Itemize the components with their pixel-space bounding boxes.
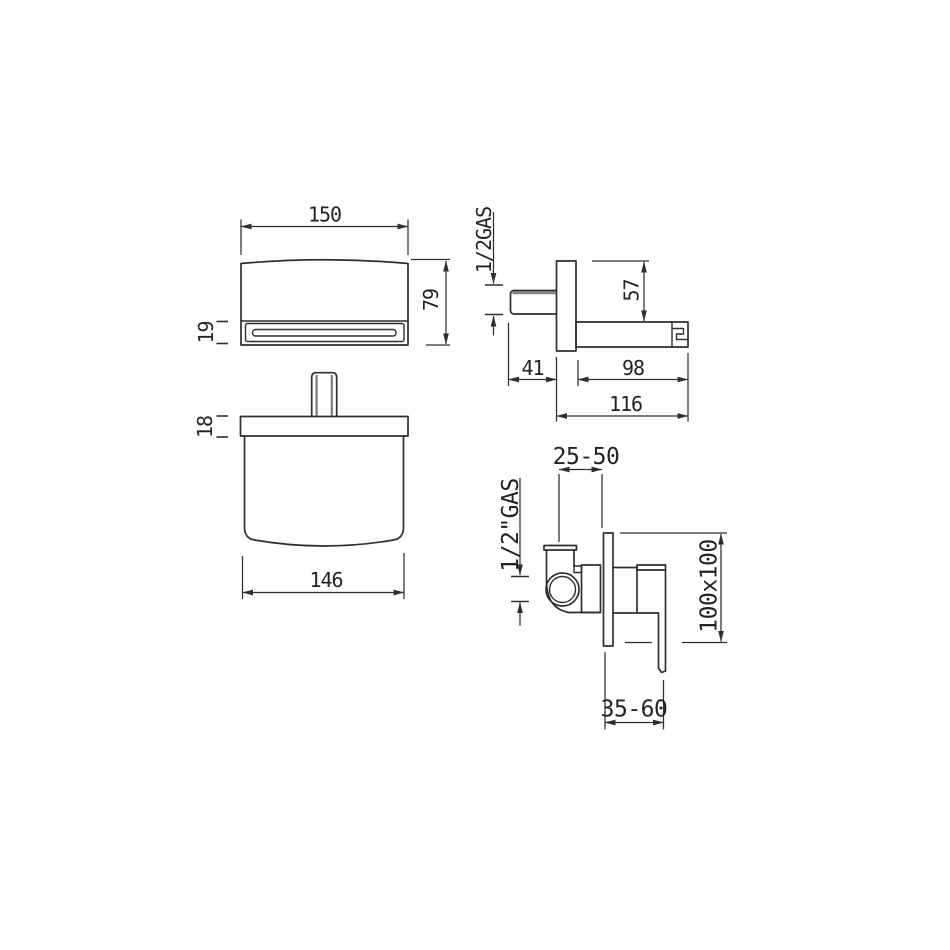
dim-label-25-50: 25-50 [553, 444, 620, 470]
dimension-thread-half-gas: 1/2GAS [472, 207, 503, 336]
dim-label-half-inch-gas: 1/2"GAS [498, 478, 524, 571]
dim-label-146: 146 [309, 568, 342, 592]
spout-side-arm-notch [672, 329, 688, 340]
dimension-handle-35-60: 35-60 [601, 652, 668, 730]
dimension-thread-half-inch-gas: 1/2"GAS [498, 478, 529, 626]
mixer-inlet-boss-circle [546, 573, 579, 606]
mixer-elbow-flange [544, 546, 577, 551]
spout-top-mounting-plate [241, 417, 409, 437]
spout-front-slot-face [246, 324, 405, 342]
dim-label-116: 116 [609, 392, 642, 416]
mixer-wall-plate [604, 533, 614, 646]
dimension-height-79: 79 [411, 260, 450, 346]
mixer-side-view: 25-50 1/2"GAS 100x100 35-60 [498, 444, 727, 730]
dimension-thickness-18: 18 [193, 416, 228, 438]
mixer-cartridge-housing [582, 565, 601, 613]
mixer-inlet-thread-circle [550, 577, 576, 603]
dim-label-35-60: 35-60 [601, 697, 668, 723]
dim-label-18: 18 [193, 416, 217, 438]
mixer-connector-step [574, 566, 582, 573]
mixer-handle-top [637, 565, 666, 570]
dim-label-150: 150 [308, 203, 341, 227]
drawing-page: 150 79 19 18 146 [0, 0, 950, 950]
dimension-total-116: 116 [557, 392, 689, 416]
dim-label-79: 79 [419, 289, 443, 311]
mixer-handle-tip [659, 668, 666, 673]
spout-side-arm [576, 322, 688, 347]
spout-top-body [245, 436, 404, 546]
spout-side-view: 1/2GAS 57 41 98 116 [472, 207, 688, 422]
dim-label-98: 98 [622, 356, 644, 380]
dim-label-57: 57 [620, 279, 644, 301]
technical-drawing: 150 79 19 18 146 [0, 0, 950, 950]
spout-front-outline [241, 260, 408, 345]
dim-label-41: 41 [521, 356, 543, 380]
dim-label-100x100: 100x100 [697, 539, 723, 632]
spout-top-view: 18 146 [193, 373, 408, 599]
spout-top-pipe-stub [312, 373, 337, 416]
dimension-plate-100x100: 100x100 [620, 533, 727, 643]
dimension-projection-41: 41 [509, 323, 557, 422]
dimension-width-150: 150 [241, 203, 408, 256]
dimension-depth-25-50: 25-50 [553, 444, 620, 542]
dim-label-19: 19 [194, 321, 218, 343]
dim-label-half-gas: 1/2GAS [472, 207, 496, 273]
dimension-width-146: 146 [243, 553, 405, 599]
spout-front-view: 150 79 19 [194, 203, 450, 346]
spout-front-waterfall-slot [253, 330, 397, 337]
dimension-slot-19: 19 [194, 321, 228, 343]
dimension-height-57: 57 [592, 261, 649, 321]
spout-side-wall-plate [557, 261, 577, 351]
